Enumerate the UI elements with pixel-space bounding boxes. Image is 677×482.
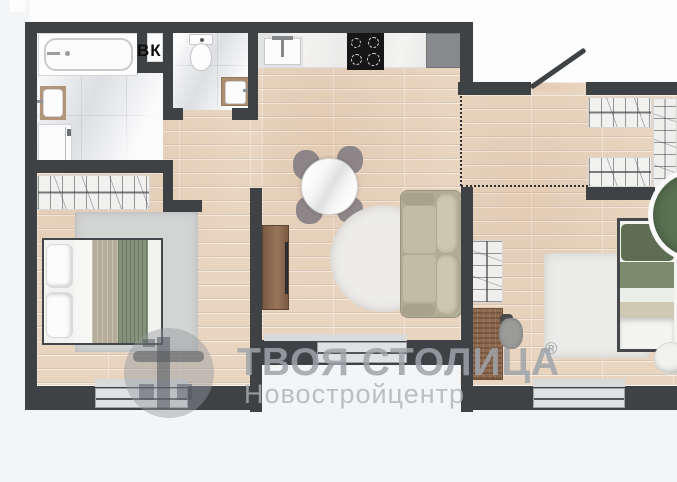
window-sill (95, 379, 188, 387)
bed2-blanket-beige (620, 302, 674, 318)
bed-blanket-beige (92, 240, 118, 343)
toilet-sink-basin (225, 81, 246, 104)
tv-stand (262, 225, 289, 310)
wall (163, 165, 173, 212)
wall (458, 82, 531, 95)
hall-wardrobe (588, 97, 652, 128)
exterior-strip-top-right (455, 0, 677, 82)
burner (351, 54, 362, 65)
bathroom-sink-basin (43, 89, 63, 117)
wall (163, 33, 173, 112)
bedroom1-bed (42, 238, 163, 345)
bathtub-drain (65, 51, 70, 56)
wall (25, 22, 473, 33)
toilet-button (200, 38, 204, 42)
sofa (400, 190, 462, 318)
burner (368, 37, 379, 48)
tv-screen (285, 242, 288, 294)
washing-machine-panel (67, 129, 71, 136)
vk-label: ВК (137, 41, 162, 61)
dining-table (301, 158, 358, 215)
burner (351, 38, 361, 48)
wall (163, 108, 183, 120)
window-frame-line (534, 398, 624, 400)
sofa-seat-cushion (403, 255, 436, 302)
washing-machine-door-line (65, 127, 66, 161)
sofa-armrest (402, 193, 435, 205)
burner (367, 53, 380, 66)
window-frame-line (318, 352, 406, 354)
washing-machine (38, 124, 72, 162)
window-frame-line (96, 398, 187, 400)
sofa-back-cushion (437, 255, 460, 314)
bed2-sheet (620, 288, 674, 302)
bathroom-sink-tap (36, 100, 43, 103)
kitchen-faucet-stem (281, 38, 284, 57)
bathroom-sink (40, 86, 66, 120)
sofa-armrest (402, 304, 435, 316)
wall (586, 82, 677, 95)
wall (248, 33, 258, 120)
bed-blanket-green (118, 240, 148, 343)
bathtub-faucet (47, 52, 60, 55)
window-sill (533, 379, 625, 387)
bed2-blanket-green (620, 262, 674, 288)
bed-pillow (46, 244, 73, 288)
hall-wardrobe (588, 157, 652, 187)
wall (25, 22, 37, 410)
bathtub (38, 33, 138, 76)
bed-pillow (46, 292, 73, 338)
exterior-strip-top (30, 0, 466, 22)
wall (461, 187, 473, 412)
bedroom1-wardrobe (37, 175, 150, 210)
toilet-bowl (190, 43, 212, 71)
wall (250, 188, 262, 412)
window (95, 388, 188, 408)
desk-chair (499, 318, 523, 349)
bed-sheet (75, 240, 92, 343)
wall (460, 22, 473, 82)
wall (25, 160, 173, 173)
fridge (426, 33, 461, 68)
bedroom2-dresser (470, 308, 503, 380)
wall (232, 108, 258, 120)
cooktop (347, 33, 384, 70)
window (317, 342, 407, 363)
wall (586, 187, 655, 200)
exterior-sliver (10, 0, 25, 12)
window-sill (264, 334, 407, 341)
window (533, 388, 625, 408)
sofa-back-cushion (437, 194, 460, 253)
floor-plan: ВК ТВОЯ СТОЛИЦА ® Новостройцентр (0, 0, 677, 482)
zone-dashed-line-vertical (460, 96, 462, 186)
bedroom2-wardrobe (471, 240, 503, 303)
zone-dashed-line-horizontal (461, 185, 588, 187)
sofa-seat-cushion (403, 206, 436, 253)
wall (173, 200, 202, 212)
watermark-subtitle: Новостройцентр (244, 379, 465, 410)
